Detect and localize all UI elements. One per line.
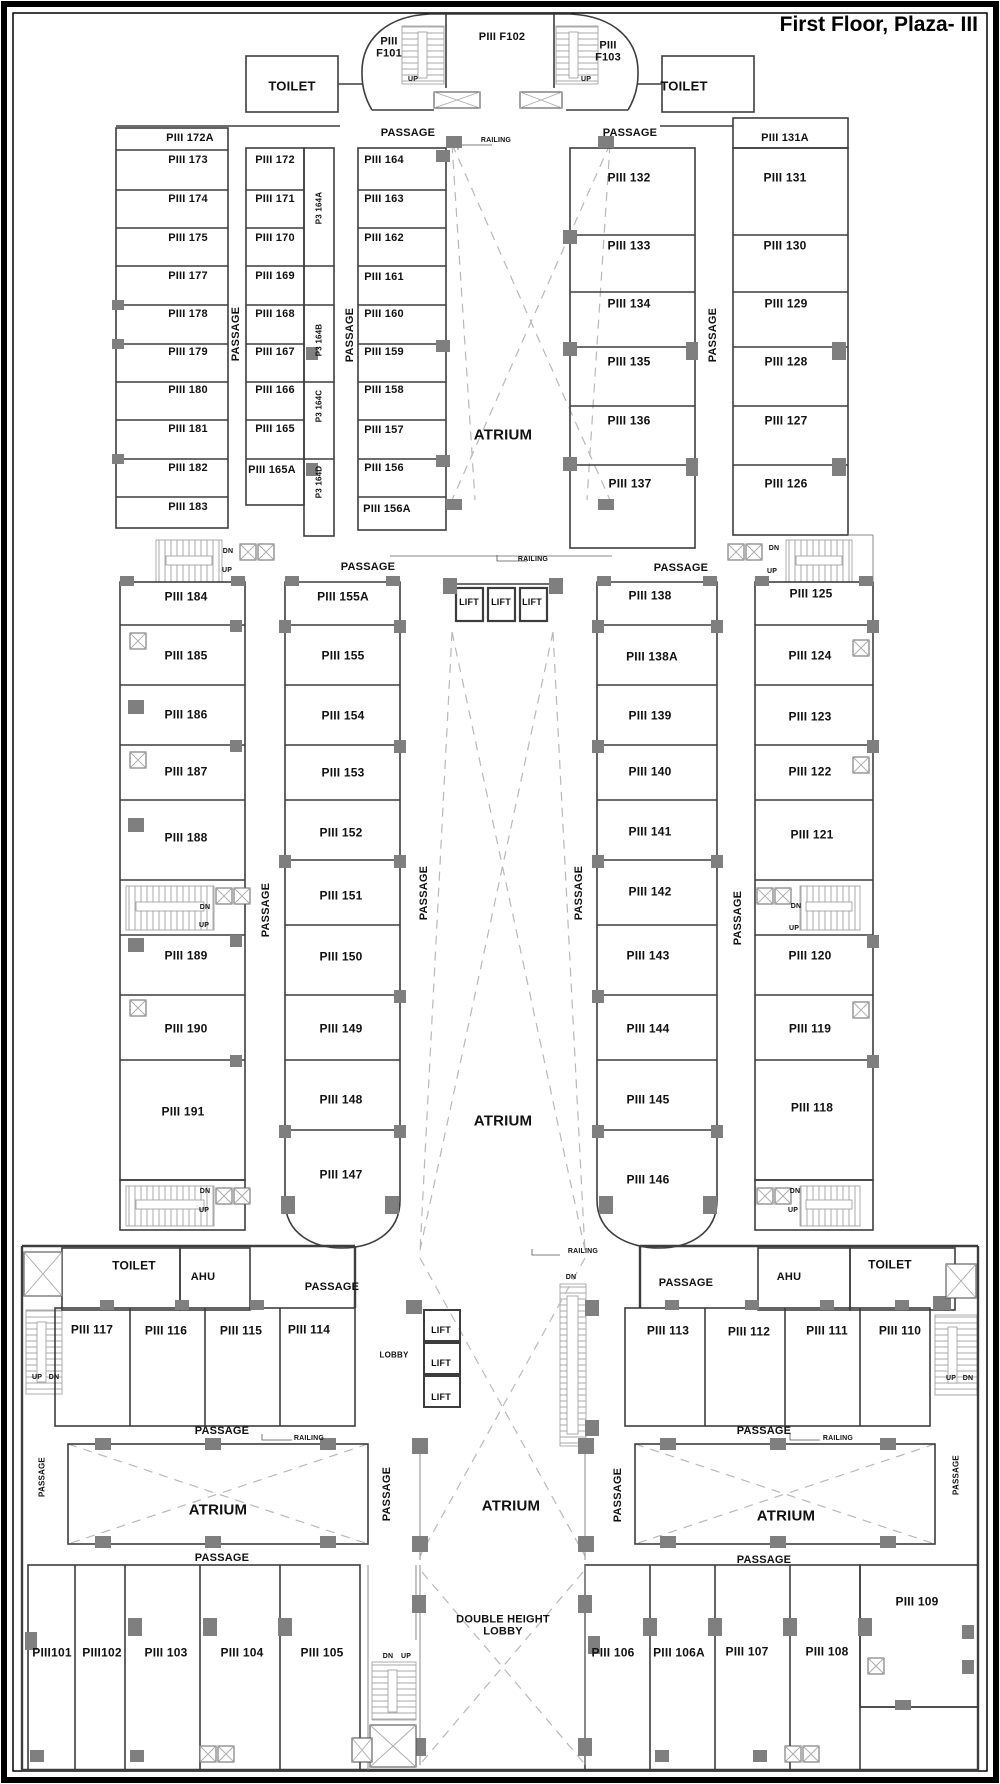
room-label-piii-141: PIII 141 [629,825,672,838]
room-label-piii-145: PIII 145 [627,1093,670,1106]
room-label-piii-118: PIII 118 [791,1101,833,1114]
room-label-piii-188: PIII 188 [165,831,208,844]
room-label-piii-133: PIII 133 [608,239,651,252]
stair-up-label-3: UP [222,567,232,575]
room-label-piii-104: PIII 104 [221,1646,264,1659]
room-label-piii-132: PIII 132 [608,171,651,184]
atrium-label-5: ATRIUM [757,1509,815,1526]
room-label-piii-144: PIII 144 [627,1022,670,1035]
atrium-label-3: ATRIUM [189,1503,247,1520]
room-label-piii-185: PIII 185 [165,649,208,662]
room-label-piii-120: PIII 120 [789,949,832,962]
room-label-piii-159: PIII 159 [364,346,404,358]
stair-dn-label-4: DN [200,1188,211,1196]
room-label-piii-112: PIII 112 [728,1325,770,1338]
passage-label-17: PASSAGE [381,1467,393,1521]
stair-up-label-4: UP [767,568,777,576]
room-label-piii-138: PIII 138 [629,589,672,602]
room-label-piii-182: PIII 182 [168,462,208,474]
stair-dn-label-6: DN [790,1188,801,1196]
room-label-piii-121: PIII 121 [791,828,834,841]
room-label-piii-166: PIII 166 [255,384,295,396]
room-label-piii-106: PIII 106 [592,1646,635,1659]
room-label-piii-106a: PIII 106A [653,1646,705,1659]
room-label-piii-111: PIII 111 [806,1324,848,1337]
room-label-piii-155: PIII 155 [322,649,365,662]
labels-layer: PIII F101PIII F102PIII F103UPUPTOILETTOI… [0,0,1000,1784]
stair-up-label-9: UP [32,1374,42,1382]
room-label-piii-180: PIII 180 [168,384,208,396]
lift-label-4: LIFT [431,1325,451,1335]
room-label-piii-130: PIII 130 [764,239,807,252]
room-label-piii-172a: PIII 172A [166,132,214,144]
lobby-label: LOBBY [380,1352,409,1361]
room-label-piii-135: PIII 135 [608,355,651,368]
stair-up-label-11: UP [401,1653,411,1661]
room-label-piii-122: PIII 122 [789,765,832,778]
room-label-piii-170: PIII 170 [255,232,295,244]
room-label-piii-110: PIII 110 [879,1324,921,1337]
room-label-piii-143: PIII 143 [627,949,670,962]
room-label-piii-150: PIII 150 [320,950,363,963]
room-label-piii-174: PIII 174 [168,193,208,205]
room-label-piii-105: PIII 105 [301,1646,344,1659]
room-label-piii-158: PIII 158 [364,384,404,396]
ahu-label-2: AHU [777,1271,801,1283]
passage-label-8: PASSAGE [260,883,272,937]
railing-label-5: RAILING [823,1435,853,1443]
room-label-piii-156: PIII 156 [364,462,404,474]
atrium-label-1: ATRIUM [474,428,532,445]
toilet-label-2: TOILET [660,80,707,95]
room-label-piii-153: PIII 153 [322,766,365,779]
room-label-piii-164: PIII 164 [364,154,404,166]
passage-label-9: PASSAGE [418,866,430,920]
stair-up-label-7: UP [789,925,799,933]
passage-label-11: PASSAGE [732,891,744,945]
stair-dn-label-9: DN [963,1375,974,1383]
passage-label-20: PASSAGE [195,1552,249,1564]
room-label-piii-171: PIII 171 [255,193,295,205]
room-label-p3-164a: P3 164A [316,192,325,225]
stair-dn-label-10: DN [383,1653,394,1661]
room-label-piii-127: PIII 127 [765,414,808,427]
room-label-piii-109: PIII 109 [896,1595,939,1608]
stair-up-label-1: UP [408,76,418,84]
room-label-piii-128: PIII 128 [765,355,808,368]
room-label-piii-142: PIII 142 [629,885,672,898]
room-label-piii-160: PIII 160 [364,308,404,320]
passage-label-2: PASSAGE [603,127,657,139]
passage-label-14: PASSAGE [195,1425,249,1437]
room-label-piii-156a: PIII 156A [363,503,411,515]
room-label-piii-117: PIII 117 [71,1323,113,1336]
passage-label-15: PASSAGE [737,1425,791,1437]
room-label-piii-138a: PIII 138A [626,650,678,663]
stair-dn-label-8: DN [49,1374,60,1382]
stair-dn-label-1: DN [223,548,234,556]
room-label-piii-151: PIII 151 [320,889,363,902]
plan-title: First Floor, Plaza- III [780,13,978,37]
room-label-piii-190: PIII 190 [165,1022,208,1035]
passage-label-18: PASSAGE [612,1468,624,1522]
passage-label-16: PASSAGE [39,1457,48,1497]
room-label-piii-139: PIII 139 [629,709,672,722]
room-label-piii-140: PIII 140 [629,765,672,778]
room-label-piii-163: PIII 163 [364,193,404,205]
room-label-piii-168: PIII 168 [255,308,295,320]
railing-label-1: RAILING [481,137,511,145]
room-label-piii-165: PIII 165 [255,423,295,435]
atrium-label-2: ATRIUM [474,1114,532,1131]
room-label-piii-103: PIII 103 [145,1646,188,1659]
room-label-p3-164c: P3 164C [316,390,325,423]
room-label-piii-f102: PIII F102 [479,31,525,43]
stair-up-label-6: UP [199,1207,209,1215]
atrium-label-4: ATRIUM [482,1499,540,1516]
railing-label-3: RAILING [568,1248,598,1256]
double-height-lobby-label: DOUBLE HEIGHT LOBBY [456,1614,550,1639]
lift-label-1: LIFT [459,597,479,607]
lift-label-3: LIFT [522,597,542,607]
room-label-piii-165a: PIII 165A [248,464,296,476]
room-label-piii-179: PIII 179 [168,346,208,358]
passage-label-19: PASSAGE [953,1455,962,1495]
lift-label-5: LIFT [431,1358,451,1368]
room-label-piii-123: PIII 123 [789,710,832,723]
room-label-piii-f101: PIII F101 [376,36,402,61]
passage-label-10: PASSAGE [573,866,585,920]
room-label-piii-169: PIII 169 [255,270,295,282]
room-label-piii-148: PIII 148 [320,1093,363,1106]
room-label-piii-154: PIII 154 [322,709,365,722]
lift-label-6: LIFT [431,1392,451,1402]
toilet-label-4: TOILET [868,1258,912,1271]
room-label-piii-178: PIII 178 [168,308,208,320]
room-label-piii-113: PIII 113 [647,1324,689,1337]
room-label-piii-181: PIII 181 [168,423,208,435]
room-label-piii-152: PIII 152 [320,826,363,839]
room-label-piii-172: PIII 172 [255,154,295,166]
room-label-piii-161: PIII 161 [364,271,404,283]
room-label-piii-134: PIII 134 [608,297,651,310]
passage-label-21: PASSAGE [737,1554,791,1566]
passage-label-6: PASSAGE [341,561,395,573]
railing-label-2: RAILING [518,556,548,564]
room-label-p3-164b: P3 164B [316,324,325,357]
room-label-piii-157: PIII 157 [364,424,404,436]
room-label-piii-189: PIII 189 [165,949,208,962]
railing-label-4: RAILING [294,1435,324,1443]
room-label-piii-108: PIII 108 [806,1645,849,1658]
room-label-piii-126: PIII 126 [765,477,808,490]
room-label-piii102: PIII102 [82,1646,121,1659]
room-label-piii-175: PIII 175 [168,232,208,244]
room-label-piii-184: PIII 184 [165,590,208,603]
room-label-piii-125: PIII 125 [790,587,833,600]
passage-label-12: PASSAGE [305,1281,359,1293]
room-label-piii-162: PIII 162 [364,232,404,244]
room-label-piii-147: PIII 147 [320,1168,363,1181]
room-label-piii-136: PIII 136 [608,414,651,427]
stair-up-label-2: UP [581,76,591,84]
stair-up-label-8: UP [788,1207,798,1215]
room-label-piii-f103: PIII F103 [595,40,621,65]
stair-up-label-10: UP [946,1375,956,1383]
stair-dn-label-7: DN [566,1274,577,1282]
passage-label-13: PASSAGE [659,1277,713,1289]
room-label-piii-114: PIII 114 [288,1323,330,1336]
room-label-piii-119: PIII 119 [789,1022,831,1035]
room-label-piii-129: PIII 129 [765,297,808,310]
toilet-label-1: TOILET [268,80,315,95]
room-label-p3-164d: P3 164D [316,466,325,499]
room-label-piii-124: PIII 124 [789,649,832,662]
lift-label-2: LIFT [491,597,511,607]
room-label-piii-149: PIII 149 [320,1022,363,1035]
stair-dn-label-2: DN [769,545,780,553]
room-label-piii-183: PIII 183 [168,501,208,513]
passage-label-3: PASSAGE [230,307,242,361]
passage-label-4: PASSAGE [344,308,356,362]
room-label-piii-107: PIII 107 [726,1645,769,1658]
floor-plan: PIII F101PIII F102PIII F103UPUPTOILETTOI… [0,0,1000,1784]
room-label-piii-116: PIII 116 [145,1324,187,1337]
room-label-piii-187: PIII 187 [165,765,208,778]
ahu-label-1: AHU [191,1271,215,1283]
stair-dn-label-3: DN [200,904,211,912]
room-label-piii-146: PIII 146 [627,1173,670,1186]
passage-label-5: PASSAGE [707,308,719,362]
stair-dn-label-5: DN [791,903,802,911]
room-label-piii-131a: PIII 131A [761,132,809,144]
stair-up-label-5: UP [199,922,209,930]
passage-label-1: PASSAGE [381,127,435,139]
room-label-piii-115: PIII 115 [220,1324,262,1337]
room-label-piii-155a: PIII 155A [317,590,369,603]
room-label-piii-137: PIII 137 [609,477,652,490]
room-label-piii-186: PIII 186 [165,708,208,721]
room-label-piii101: PIII101 [32,1646,71,1659]
toilet-label-3: TOILET [112,1259,156,1272]
passage-label-7: PASSAGE [654,562,708,574]
room-label-piii-131: PIII 131 [764,171,807,184]
room-label-piii-167: PIII 167 [255,346,295,358]
room-label-piii-173: PIII 173 [168,154,208,166]
room-label-piii-177: PIII 177 [168,270,208,282]
room-label-piii-191: PIII 191 [162,1105,205,1118]
